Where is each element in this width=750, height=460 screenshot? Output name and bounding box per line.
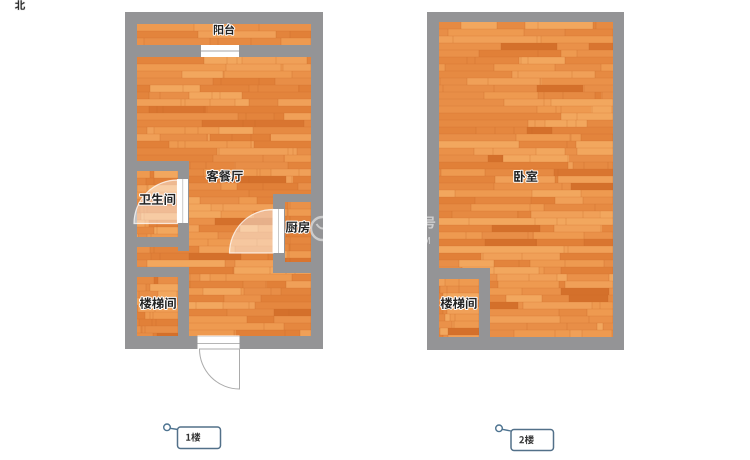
- svg-text:M: M: [422, 235, 431, 247]
